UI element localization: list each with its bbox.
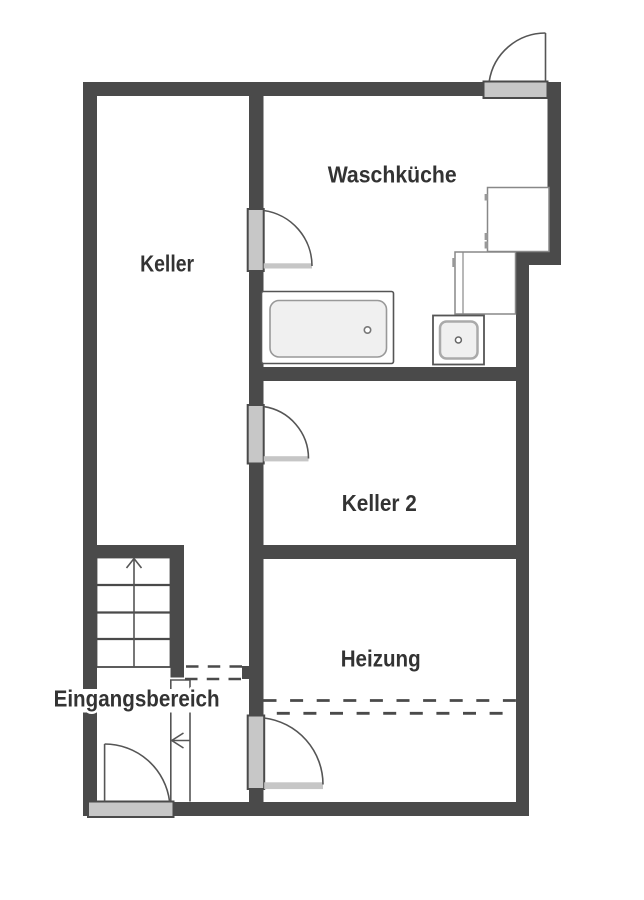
svg-text:Waschküche: Waschküche: [328, 161, 457, 187]
svg-text:Eingangsbereich: Eingangsbereich: [54, 685, 220, 711]
svg-text:Keller: Keller: [140, 250, 194, 276]
svg-text:Heizung: Heizung: [341, 645, 421, 671]
svg-text:Keller 2: Keller 2: [342, 490, 417, 516]
